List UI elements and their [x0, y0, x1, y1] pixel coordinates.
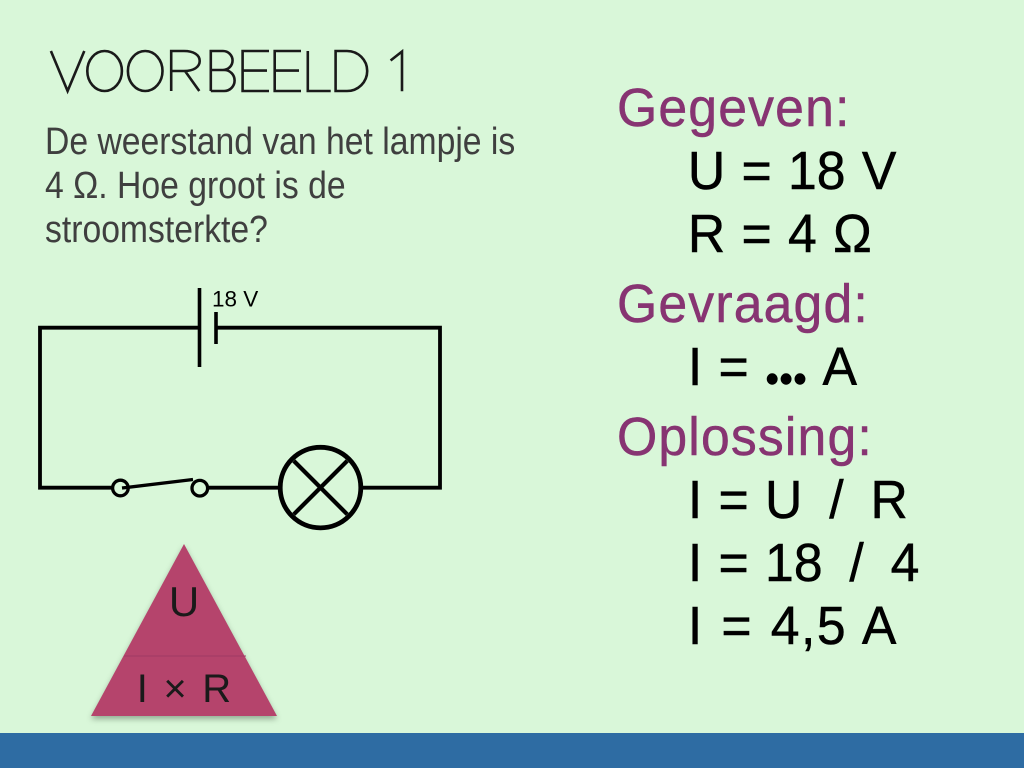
svg-text:I × R: I × R [137, 667, 234, 711]
svg-text:U: U [169, 578, 199, 625]
svg-text:18 V: 18 V [212, 287, 258, 312]
